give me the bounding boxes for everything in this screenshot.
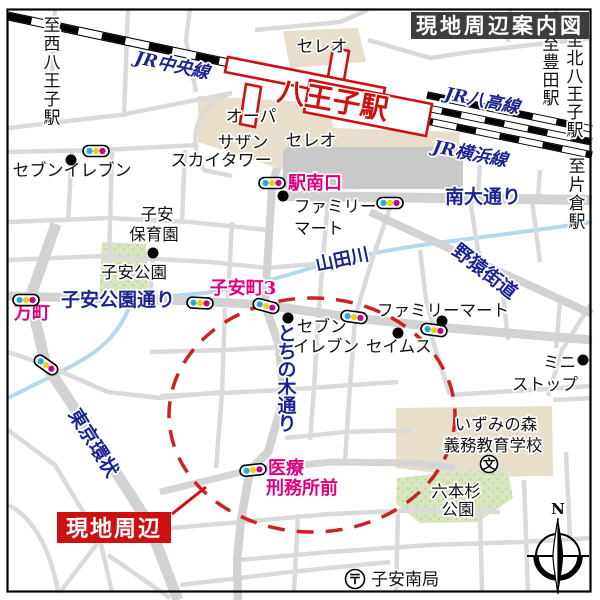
label-minami-odori: 南大通り [445, 185, 521, 208]
compass-north-label: N [551, 500, 565, 518]
title-box: 現地周辺案内図 [411, 12, 589, 39]
label-iryo-keimusho-line1: 医療 [268, 457, 305, 479]
label-family-mart-north-line1: ファミリー [294, 197, 377, 216]
callout-label: 現地周辺 [66, 516, 162, 542]
traffic-light-icon [83, 146, 109, 157]
poi-dot-seven-eleven-south [283, 313, 294, 324]
traffic-light-icon [13, 295, 39, 306]
poi-dot-seims [393, 328, 404, 339]
page-title: 現地周辺案内図 [416, 13, 584, 38]
post-office-glyph: 〒 [348, 572, 362, 588]
label-ropponsugi-line1: 六本杉 [431, 482, 481, 501]
label-seven-south-line1: セブン [297, 316, 347, 336]
label-koyasucho3: 子安町3 [210, 277, 277, 299]
map-canvas: 八王子駅 現地周辺 JR中央線 JR八高線 JR横浜線 南大通り 子安公園通り … [0, 0, 600, 600]
traffic-light-icon [187, 297, 214, 309]
label-koyasu-hoikuen-line1: 子安 [141, 205, 174, 224]
poi-dot-koyasu-hoikuen [148, 248, 159, 259]
label-celeo-north: セレオ [297, 37, 348, 57]
traffic-light-icon [239, 463, 266, 477]
label-izuminomori-line1: いずみの森 [455, 415, 538, 434]
school-symbol-glyph: 文 [483, 457, 496, 472]
label-sky-tower: スカイタワー [170, 151, 271, 171]
label-izuminomori-line2: 義務教育学校 [444, 436, 543, 455]
label-to-nishi-hachioji: 至西八王子駅 [44, 16, 61, 129]
poi-dot-family-mart-south [437, 316, 448, 327]
area-guide-map: 八王子駅 現地周辺 JR中央線 JR八高線 JR横浜線 南大通り 子安公園通り … [0, 0, 600, 600]
label-ministop-line2: ストップ [512, 375, 579, 394]
label-koyasu-koen-dori: 子安公園通り [61, 288, 175, 311]
label-ropponsugi-line2: 公園 [442, 500, 475, 519]
post-office-icon: 〒 [346, 570, 365, 589]
poi-dot-family-mart-north [278, 191, 289, 202]
label-koyasu-minami-post: 子安南局 [371, 570, 439, 590]
label-southern: サザン [218, 133, 269, 153]
traffic-light-icon [377, 198, 403, 209]
traffic-light-icon [259, 178, 285, 189]
label-opa: オーパ [226, 107, 277, 127]
label-ministop-line1: ミニ [543, 353, 576, 372]
label-family-mart-north-line2: マート [294, 219, 344, 238]
poi-dot-seven-eleven-north [66, 155, 77, 166]
label-celeo-south: セレオ [286, 131, 337, 151]
label-to-toyoda: 至豊田駅 [543, 35, 560, 109]
label-to-katakura: 至片倉駅 [569, 157, 586, 233]
label-eki-minamiguchi: 駅南口 [287, 172, 342, 194]
label-koyasu-hoikuen-line2: 保育園 [129, 225, 179, 244]
label-to-kita-hachioji: 至北八王子駅 [567, 31, 584, 141]
label-seims: セイムス [366, 337, 432, 356]
school-symbol-icon: 文 [481, 456, 498, 473]
callout-box: 現地周辺 [57, 512, 171, 543]
label-seven-south-line2: イレブン [293, 336, 359, 356]
poi-dot-ministop [578, 355, 589, 366]
label-iryo-keimusho-line2: 刑務所前 [266, 477, 338, 499]
label-koyasu-park: 子安公園 [101, 263, 167, 282]
